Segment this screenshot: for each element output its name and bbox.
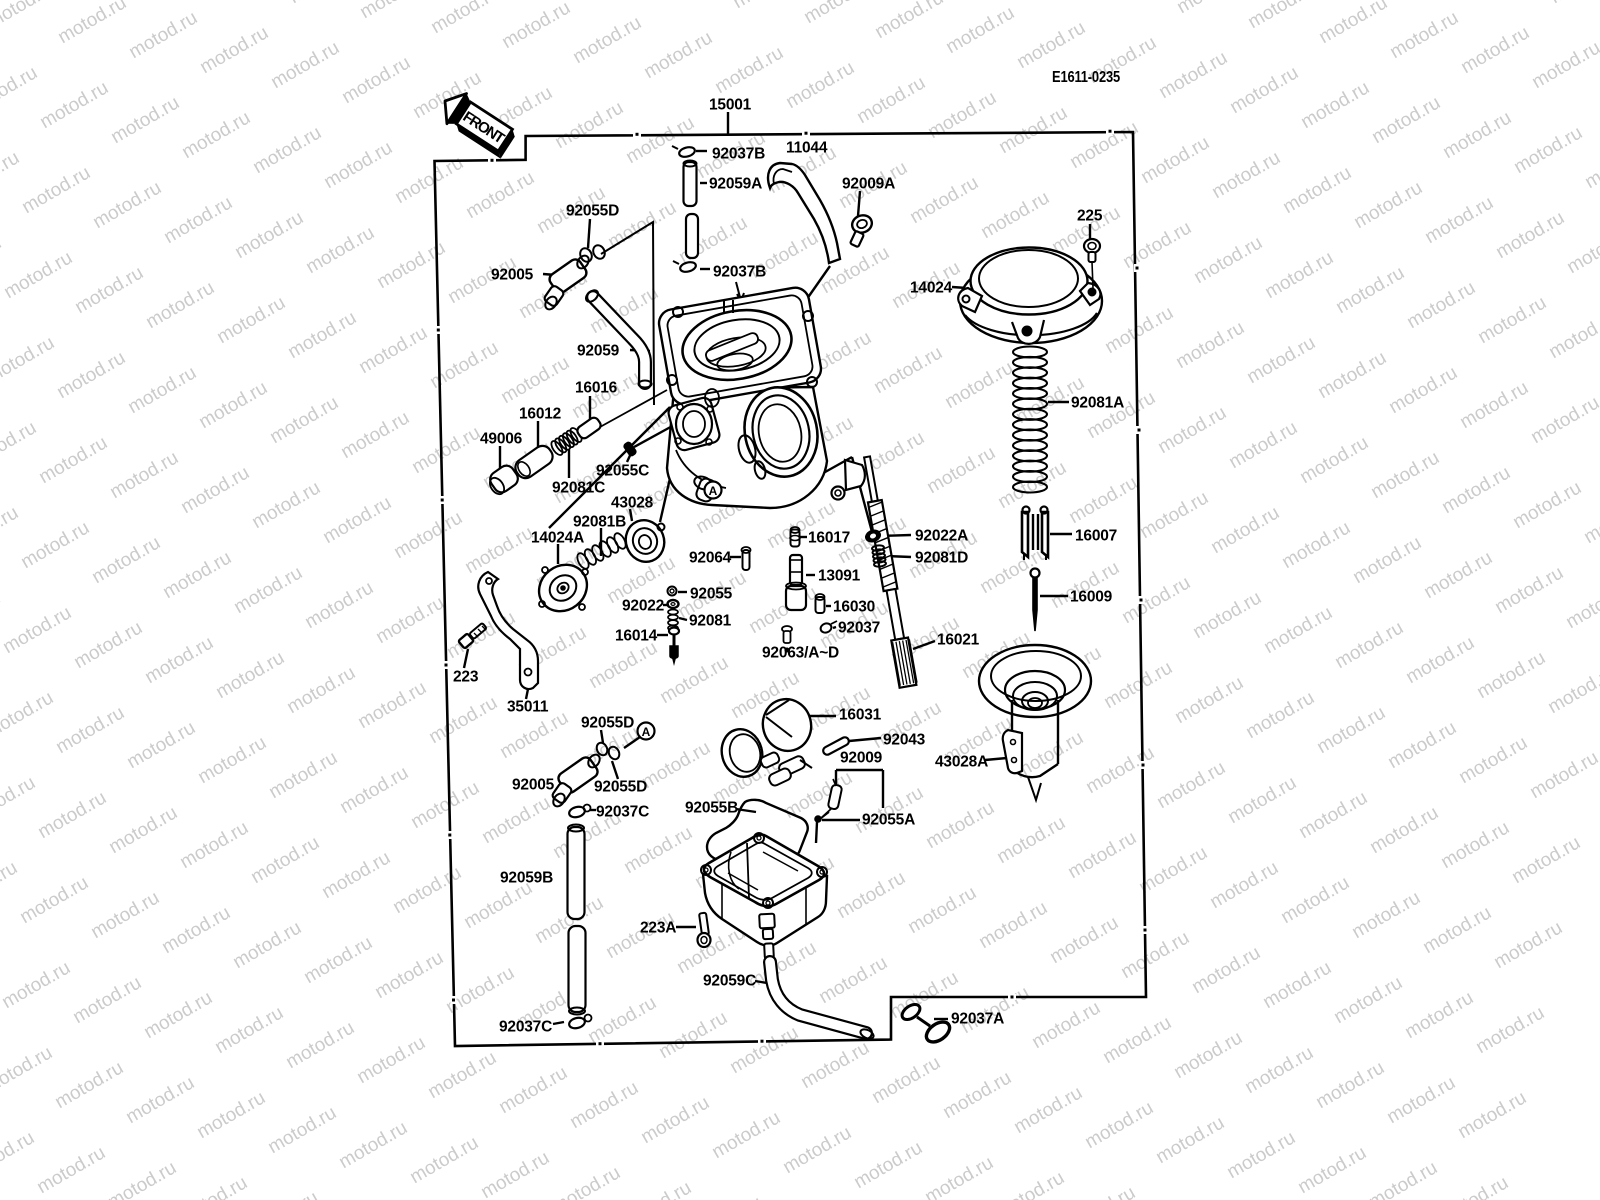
svg-text:A: A xyxy=(709,484,718,498)
svg-text:92055D: 92055D xyxy=(581,714,634,731)
svg-text:92055C: 92055C xyxy=(596,462,649,479)
svg-text:E1611-0235: E1611-0235 xyxy=(1052,69,1120,86)
svg-text:13091: 13091 xyxy=(818,567,861,584)
svg-text:16009: 16009 xyxy=(1070,588,1113,605)
svg-text:14024A: 14024A xyxy=(531,529,584,546)
svg-text:92055B: 92055B xyxy=(685,799,738,816)
svg-text:15001: 15001 xyxy=(709,96,752,113)
svg-text:92043: 92043 xyxy=(883,731,926,748)
svg-text:16007: 16007 xyxy=(1075,527,1117,544)
svg-text:43028A: 43028A xyxy=(935,753,988,770)
svg-text:35011: 35011 xyxy=(507,698,549,715)
svg-text:16031: 16031 xyxy=(839,706,882,723)
svg-text:223A: 223A xyxy=(640,919,676,936)
svg-text:92064: 92064 xyxy=(689,549,732,566)
svg-text:92055: 92055 xyxy=(690,585,733,602)
svg-text:14024: 14024 xyxy=(910,279,953,296)
svg-text:223: 223 xyxy=(453,668,479,685)
svg-text:43028: 43028 xyxy=(611,494,654,511)
svg-text:92059C: 92059C xyxy=(703,972,756,989)
svg-text:92059A: 92059A xyxy=(709,175,762,192)
svg-text:92037C: 92037C xyxy=(499,1018,552,1035)
svg-text:92055A: 92055A xyxy=(862,811,915,828)
svg-text:16014: 16014 xyxy=(615,627,658,644)
svg-text:92005: 92005 xyxy=(512,776,555,793)
svg-text:225: 225 xyxy=(1077,207,1103,224)
svg-text:92081B: 92081B xyxy=(573,513,626,530)
svg-text:92081C: 92081C xyxy=(552,479,605,496)
svg-text:92037B: 92037B xyxy=(712,145,765,162)
svg-text:16030: 16030 xyxy=(833,598,875,615)
svg-text:92037C: 92037C xyxy=(596,803,649,820)
svg-text:92005: 92005 xyxy=(491,266,534,283)
svg-text:16012: 16012 xyxy=(519,405,561,422)
svg-text:16017: 16017 xyxy=(808,529,850,546)
svg-text:16016: 16016 xyxy=(575,379,618,396)
svg-text:92081D: 92081D xyxy=(915,549,968,566)
svg-text:92037: 92037 xyxy=(838,619,880,636)
svg-text:92037B: 92037B xyxy=(713,263,766,280)
svg-text:92081A: 92081A xyxy=(1071,394,1124,411)
svg-text:A: A xyxy=(642,725,651,739)
svg-text:92009: 92009 xyxy=(840,749,883,766)
svg-text:92055D: 92055D xyxy=(566,202,619,219)
svg-text:92037A: 92037A xyxy=(951,1010,1004,1027)
svg-text:92081: 92081 xyxy=(689,612,732,629)
svg-text:92022A: 92022A xyxy=(915,527,968,544)
svg-text:49006: 49006 xyxy=(480,430,523,447)
svg-text:16021: 16021 xyxy=(937,631,980,648)
svg-text:92059B: 92059B xyxy=(500,869,553,886)
svg-text:92059: 92059 xyxy=(577,342,620,359)
svg-text:11044: 11044 xyxy=(786,139,828,156)
svg-text:92063/A~D: 92063/A~D xyxy=(762,644,839,661)
svg-text:92022: 92022 xyxy=(622,597,664,614)
svg-text:92055D: 92055D xyxy=(594,778,647,795)
svg-text:92009A: 92009A xyxy=(842,175,895,192)
